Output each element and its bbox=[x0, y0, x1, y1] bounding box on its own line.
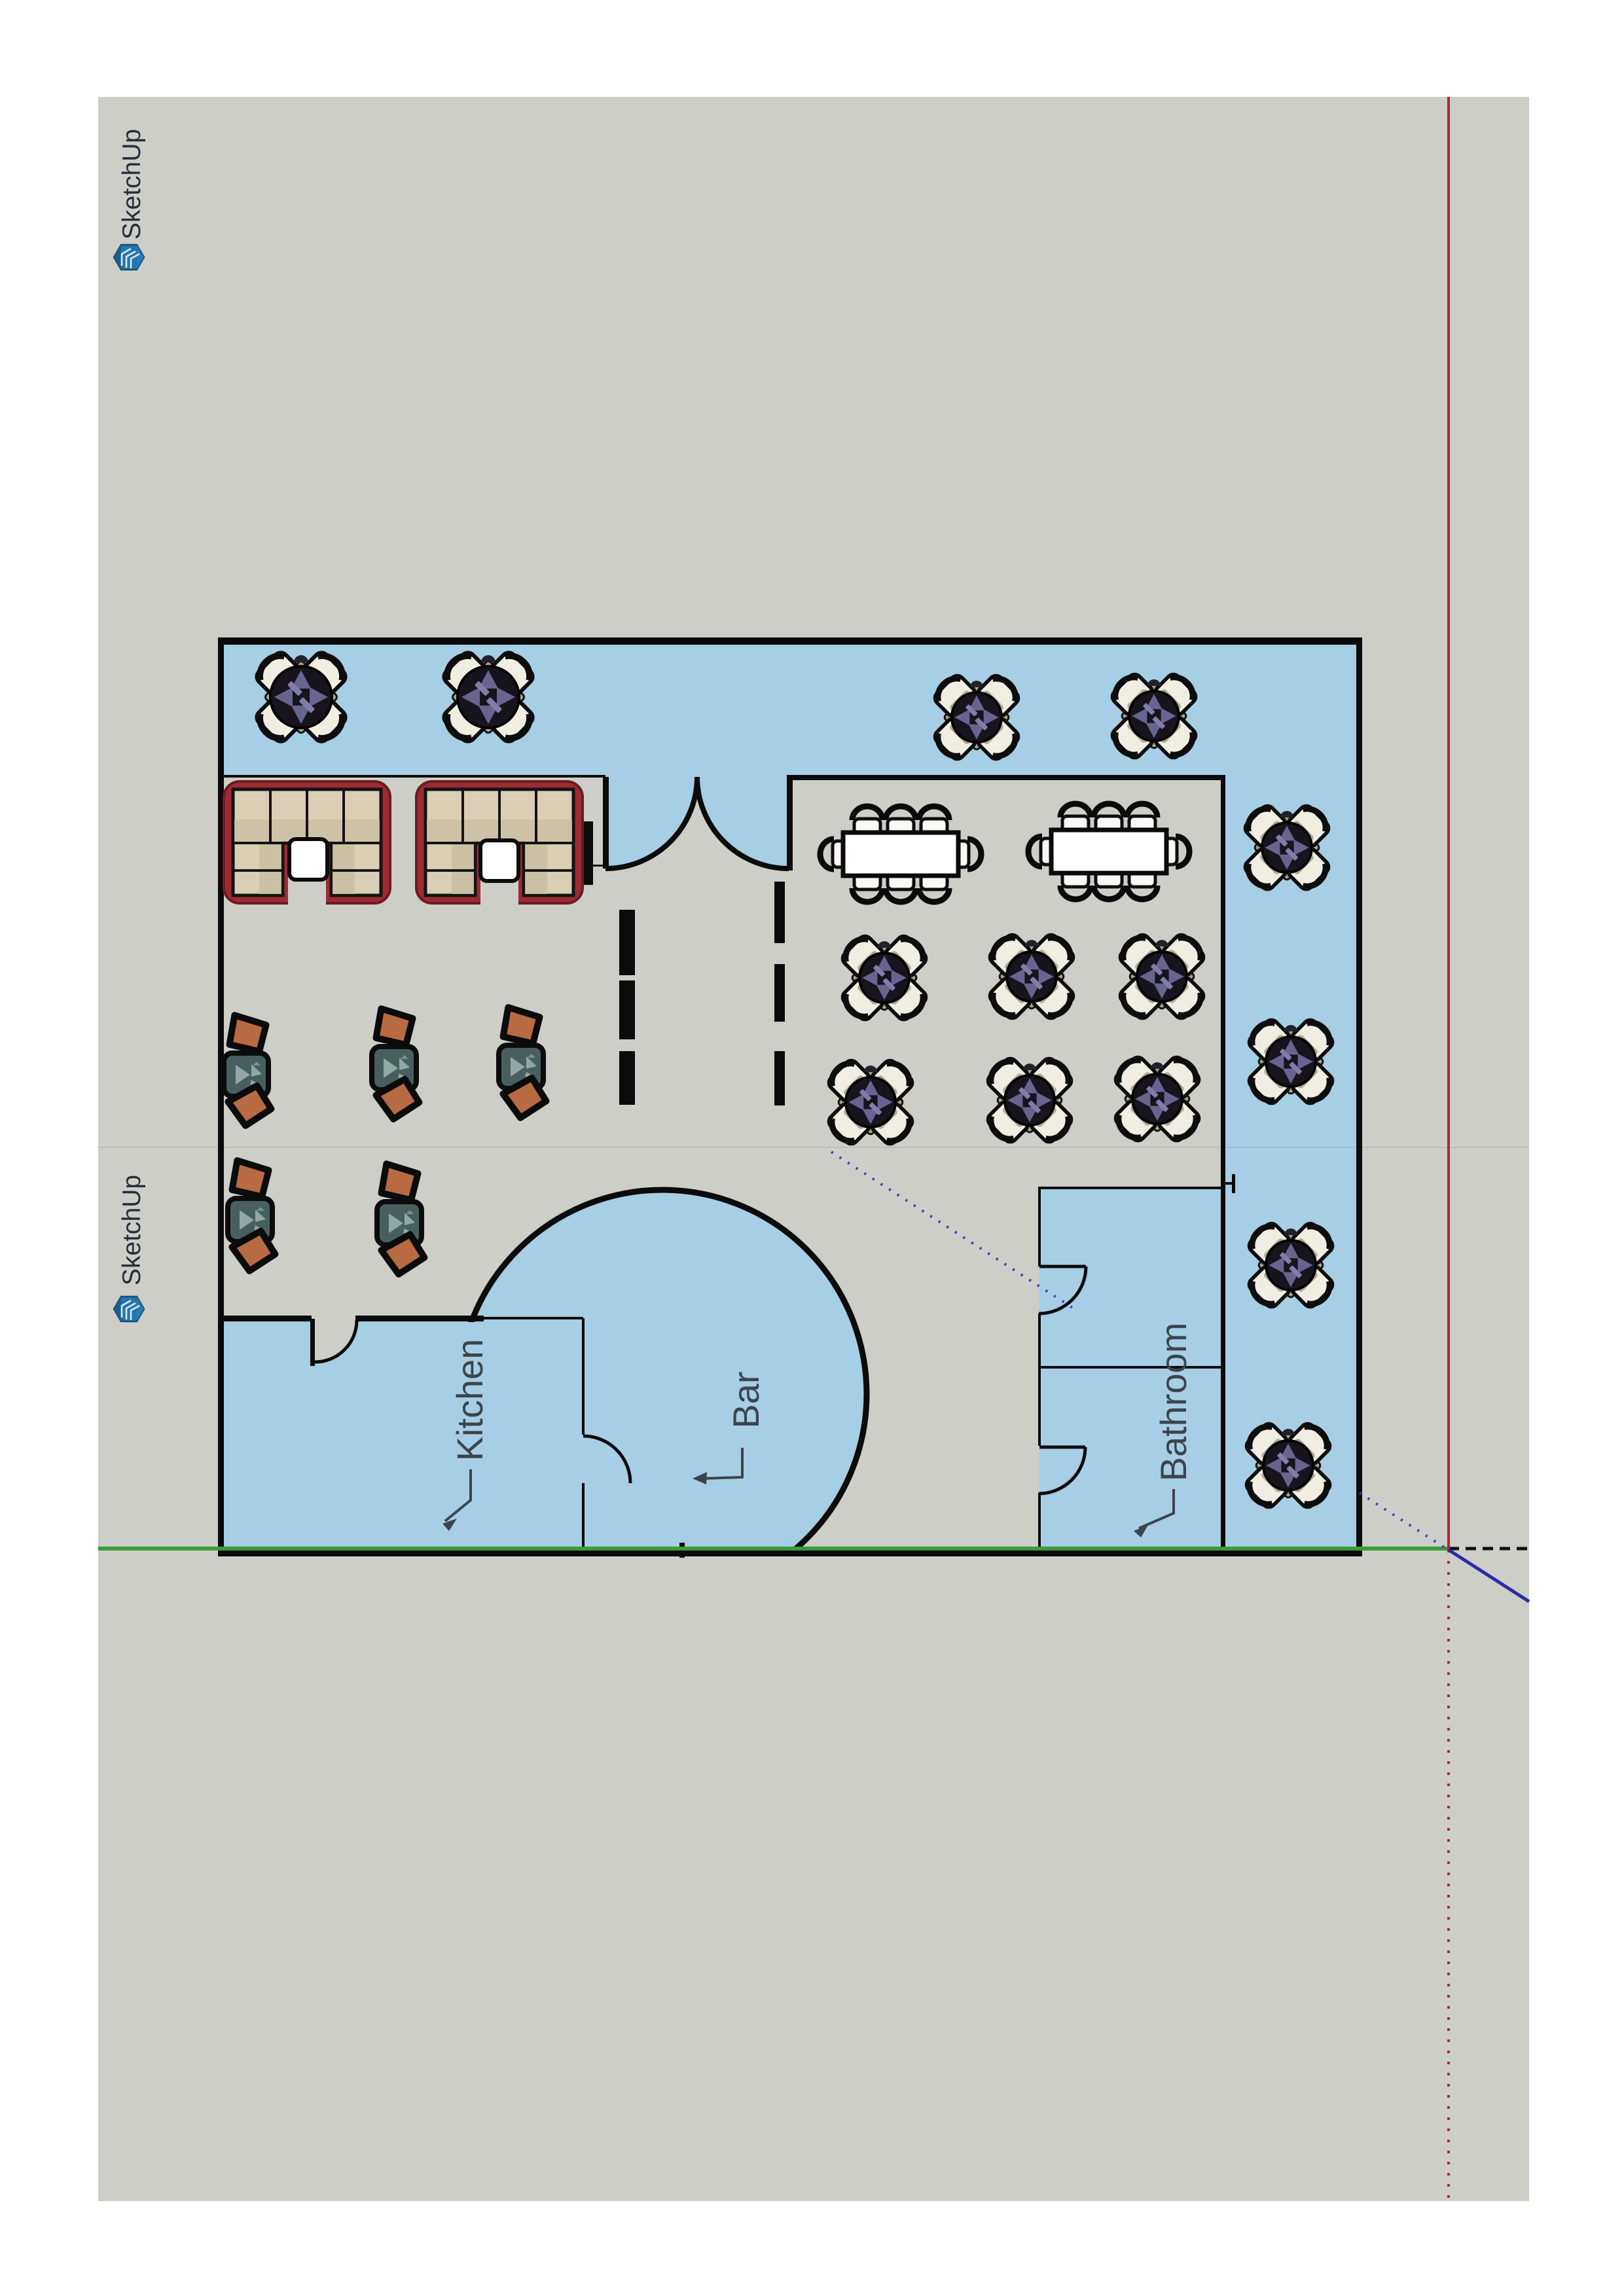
svg-text:Bar: Bar bbox=[725, 1371, 767, 1428]
svg-text:SketchUp: SketchUp bbox=[118, 1175, 146, 1285]
svg-text:Bathroom: Bathroom bbox=[1153, 1323, 1194, 1482]
svg-text:SketchUp: SketchUp bbox=[118, 129, 146, 240]
svg-text:Kitchen: Kitchen bbox=[449, 1339, 490, 1462]
